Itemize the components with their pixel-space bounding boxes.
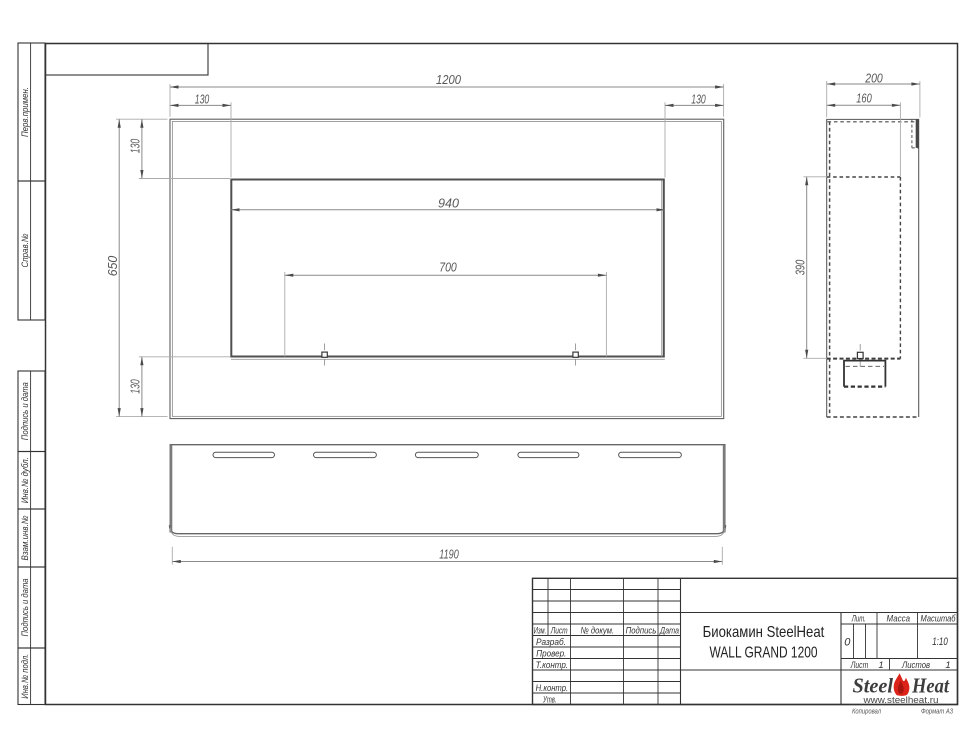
svg-text:Лист: Лист	[550, 626, 568, 637]
svg-text:Биокамин SteelHeat: Биокамин SteelHeat	[703, 624, 825, 641]
svg-text:Подпись: Подпись	[626, 626, 657, 637]
svg-text:Лит.: Лит.	[851, 614, 866, 625]
svg-text:Изм.: Изм.	[534, 626, 547, 637]
svg-text:130: 130	[127, 379, 142, 394]
svg-text:Листов: Листов	[901, 660, 930, 671]
svg-text:Масса: Масса	[887, 614, 911, 625]
svg-text:Дата: Дата	[659, 626, 679, 637]
svg-text:Steel: Steel	[853, 674, 894, 698]
svg-text:www.steelheat.ru: www.steelheat.ru	[862, 695, 938, 706]
svg-text:1190: 1190	[439, 547, 459, 562]
svg-text:1200: 1200	[436, 72, 462, 87]
svg-text:Н.контр.: Н.контр.	[536, 683, 569, 694]
svg-text:130: 130	[691, 92, 706, 107]
svg-text:940: 940	[438, 195, 460, 210]
svg-text:650: 650	[105, 255, 120, 276]
svg-text:Утв.: Утв.	[542, 695, 556, 706]
svg-text:Инв.№ подл.: Инв.№ подл.	[20, 654, 30, 699]
svg-text:700: 700	[439, 259, 457, 274]
svg-text:Взам.инв.№: Взам.инв.№	[20, 516, 30, 561]
svg-text:Подпись и дата: Подпись и дата	[20, 579, 30, 637]
svg-text:Копировал: Копировал	[852, 709, 881, 716]
svg-text:Справ.№: Справ.№	[20, 234, 30, 268]
svg-text:390: 390	[793, 259, 808, 275]
svg-text:Перв.примен.: Перв.примен.	[20, 87, 30, 137]
svg-text:130: 130	[127, 138, 142, 153]
svg-text:Формат А3: Формат А3	[921, 709, 953, 716]
svg-text:1: 1	[878, 660, 883, 671]
svg-text:1:10: 1:10	[932, 636, 948, 648]
svg-text:160: 160	[856, 91, 872, 106]
svg-text:130: 130	[195, 92, 210, 107]
svg-text:№ докум.: № докум.	[581, 626, 615, 637]
svg-text:1: 1	[945, 660, 950, 671]
svg-text:Лист: Лист	[850, 660, 868, 671]
svg-text:Масштаб: Масштаб	[921, 614, 957, 625]
svg-text:0: 0	[844, 637, 851, 649]
svg-text:Подпись и дата: Подпись и дата	[20, 382, 30, 440]
svg-text:Разраб.: Разраб.	[536, 637, 566, 648]
svg-text:Heat: Heat	[911, 674, 950, 698]
svg-text:Инв.№ дубл.: Инв.№ дубл.	[20, 457, 30, 503]
svg-text:200: 200	[864, 71, 883, 86]
svg-text:Т.контр.: Т.контр.	[536, 660, 569, 671]
svg-text:WALL GRAND 1200: WALL GRAND 1200	[710, 645, 818, 662]
svg-text:Провер.: Провер.	[536, 649, 566, 660]
